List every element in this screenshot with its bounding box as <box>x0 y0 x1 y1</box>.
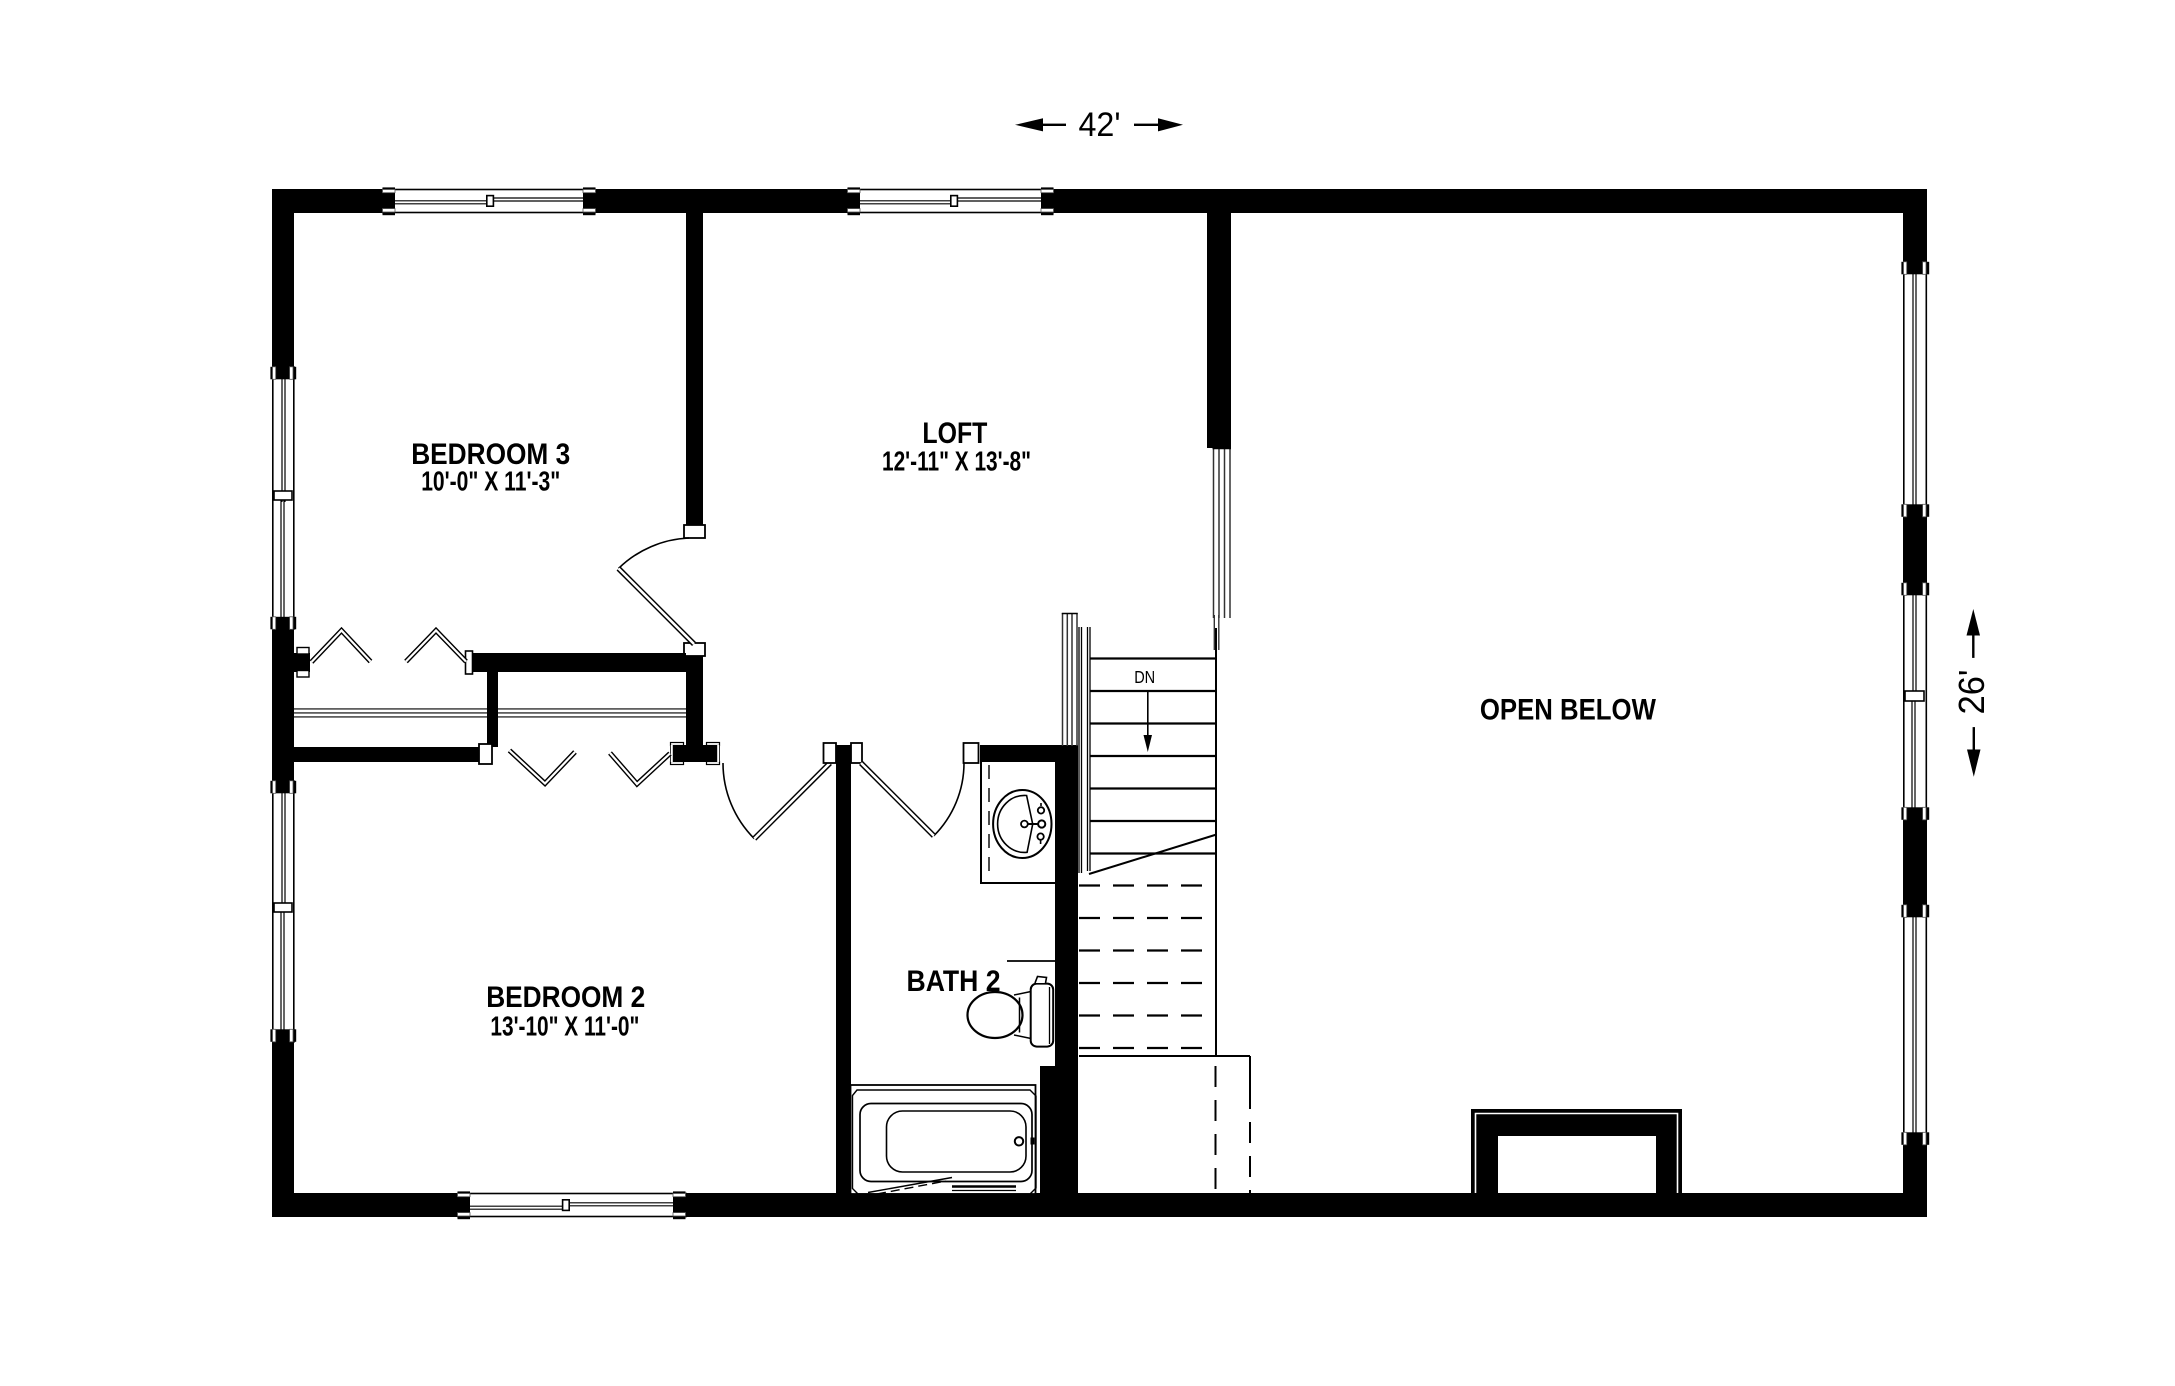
svg-text:DN: DN <box>1134 667 1155 687</box>
svg-text:10'-0" X 11'-3": 10'-0" X 11'-3" <box>421 466 560 497</box>
svg-text:BEDROOM 2: BEDROOM 2 <box>486 981 645 1014</box>
svg-text:OPEN BELOW: OPEN BELOW <box>1480 694 1657 727</box>
svg-text:42': 42' <box>1079 106 1121 144</box>
svg-text:13'-10" X 11'-0": 13'-10" X 11'-0" <box>490 1011 639 1042</box>
svg-text:26': 26' <box>1951 670 1992 715</box>
svg-text:BATH 2: BATH 2 <box>907 965 1001 998</box>
svg-text:12'-11" X 13'-8": 12'-11" X 13'-8" <box>882 446 1031 477</box>
